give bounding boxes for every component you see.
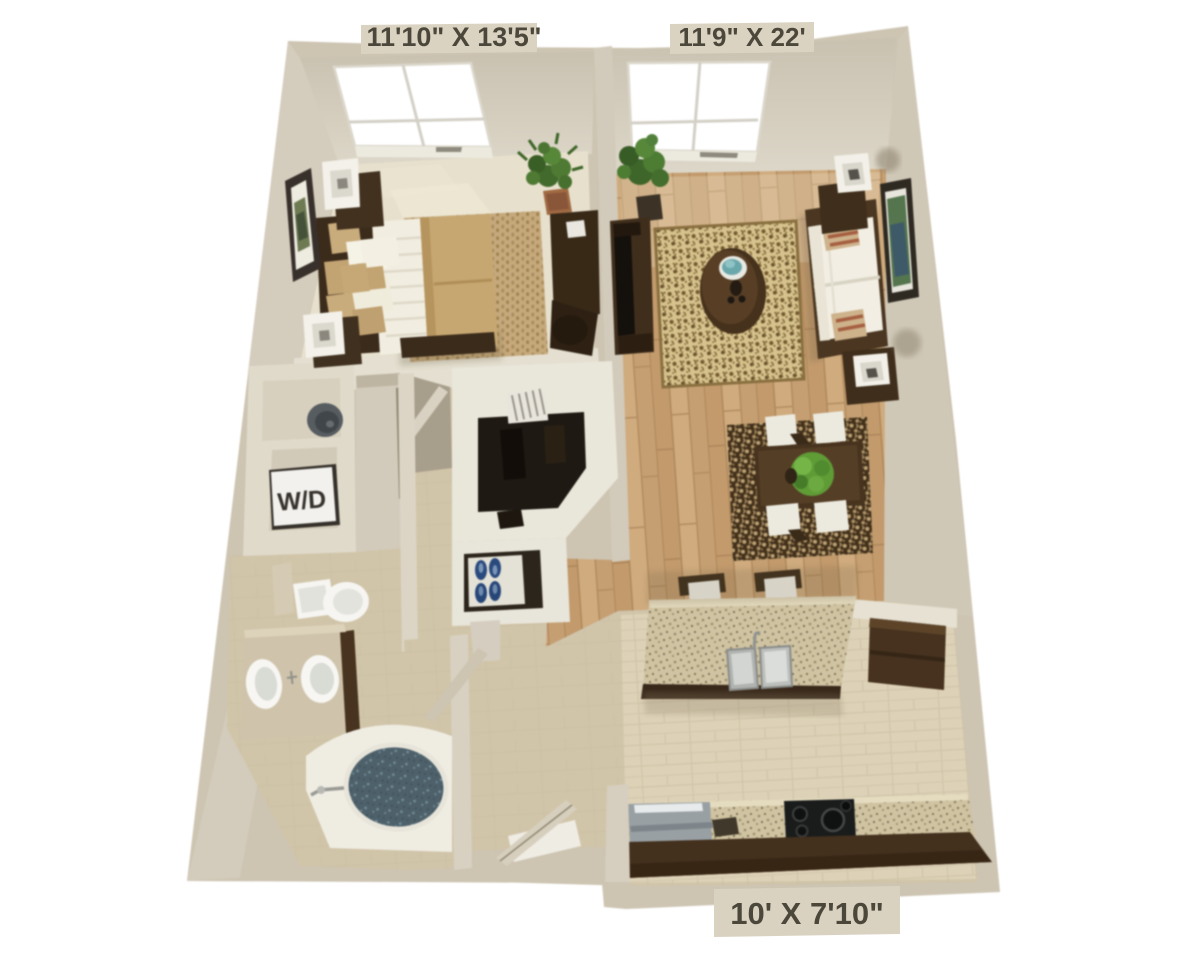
svg-text:11'10" X 13'5": 11'10" X 13'5"	[366, 22, 541, 52]
svg-text:10' X 7'10": 10' X 7'10"	[730, 896, 884, 931]
svg-text:11'9" X 22': 11'9" X 22'	[678, 22, 805, 52]
svg-text:W/D: W/D	[277, 485, 327, 516]
